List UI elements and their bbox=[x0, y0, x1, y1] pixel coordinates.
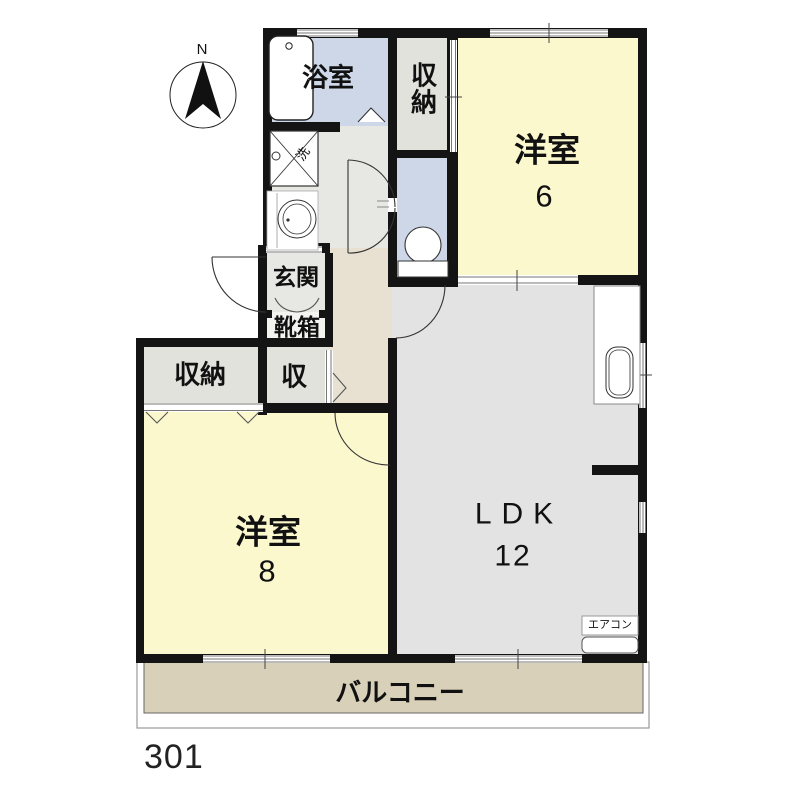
western6-size: 6 bbox=[535, 181, 552, 214]
washbasin bbox=[267, 191, 318, 250]
balcony-label: バルコニー bbox=[335, 679, 464, 706]
wall-closettop-bottom bbox=[388, 150, 458, 158]
western8-size: 8 bbox=[258, 556, 275, 589]
floorplan-page: N 浴室 収納 洋室 6 玄関 靴箱 収 収納 洋室 8 LDK 12 バルコニ… bbox=[0, 0, 800, 800]
wall-left-entrance bbox=[258, 245, 267, 415]
compass bbox=[170, 61, 236, 128]
wall-closet-row-bottom bbox=[263, 403, 397, 413]
wall-shoebox-stub-right bbox=[319, 310, 333, 318]
aircon-label: エアコン bbox=[588, 620, 632, 632]
entrance-label: 玄関 bbox=[273, 265, 319, 289]
wall-entrance-right bbox=[325, 253, 333, 345]
closet-left-label: 収納 bbox=[174, 361, 226, 388]
opening-closet-left bbox=[144, 403, 263, 412]
wall-center-a3 bbox=[388, 338, 397, 655]
closet-small-label: 収 bbox=[281, 363, 307, 390]
ldk-label: LDK bbox=[475, 498, 563, 530]
window-right-lower bbox=[639, 502, 646, 533]
compass-arrow-icon bbox=[185, 61, 221, 119]
shoebox-label: 靴箱 bbox=[274, 315, 320, 339]
wall-center-a1 bbox=[388, 28, 397, 198]
wall-ldk-stub bbox=[592, 465, 640, 475]
bath-label: 浴室 bbox=[302, 64, 354, 91]
wall-left-lower bbox=[136, 338, 144, 663]
ldk-size: 12 bbox=[494, 540, 531, 572]
western8-label: 洋室 bbox=[235, 516, 301, 551]
unit-number: 301 bbox=[144, 740, 204, 776]
entrance-door-swing bbox=[212, 257, 266, 312]
wall-western6-bottom-right bbox=[578, 275, 640, 285]
kitchen-counter bbox=[594, 286, 640, 404]
wall-toilet-bottom bbox=[388, 277, 458, 287]
western6-label: 洋室 bbox=[514, 134, 580, 169]
closet-top-label: 収納 bbox=[409, 63, 439, 118]
washer-pan bbox=[270, 131, 318, 186]
compass-north-label: N bbox=[197, 42, 208, 58]
opening-closet-small bbox=[325, 350, 333, 403]
